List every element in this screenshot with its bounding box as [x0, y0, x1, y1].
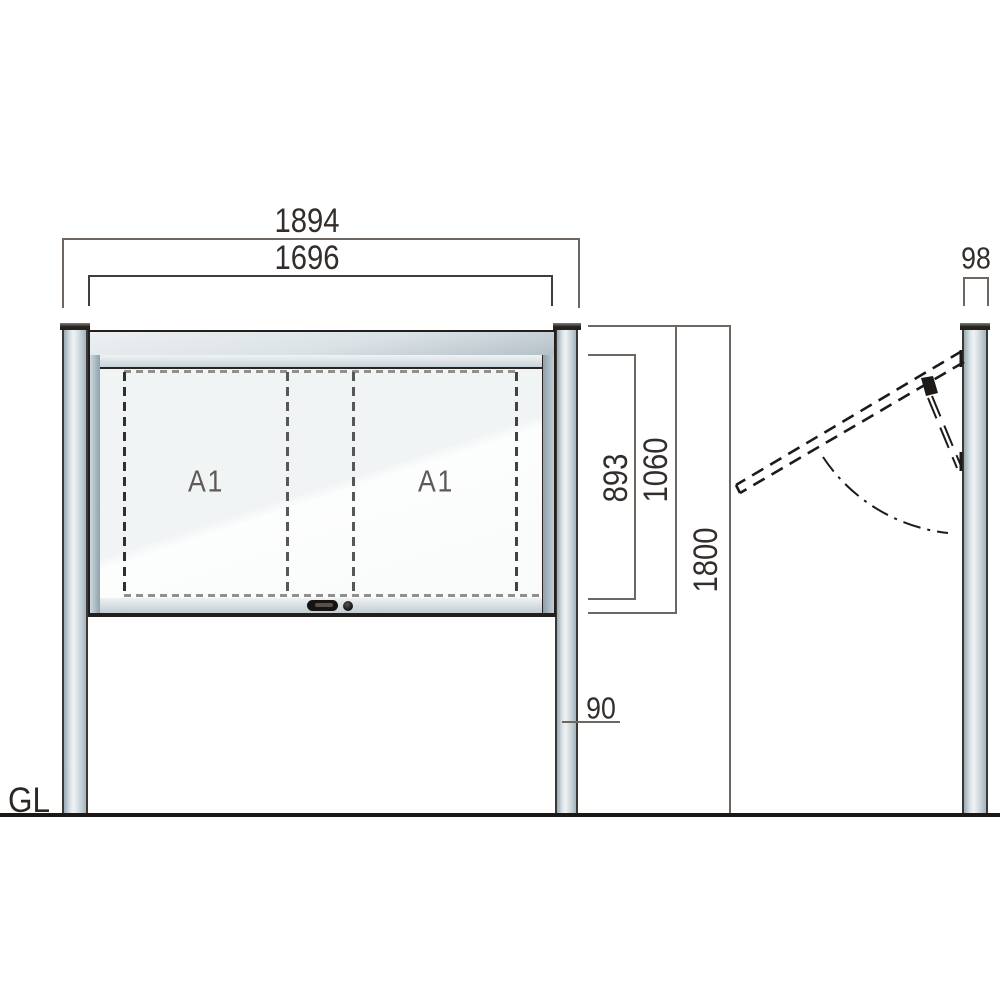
extension-line-board-top [588, 325, 731, 327]
ground-line-label: GL [8, 783, 50, 818]
dim-1060-line [675, 325, 677, 614]
poster-size-label-right: A1 [418, 466, 454, 497]
board-left-frame [88, 355, 100, 617]
poster-size-label-left: A1 [188, 466, 224, 497]
front-left-post-cap [60, 323, 90, 330]
ground-line [0, 813, 1000, 817]
door-swing-arc [823, 457, 948, 533]
poster-area-dashed-bottom [124, 594, 542, 597]
dim-98-tick-left [963, 277, 965, 306]
dim-1696-label: 1696 [274, 241, 339, 275]
dim-1894-tick-right [578, 238, 580, 308]
gas-stay-rod-dashed-b [932, 396, 961, 466]
poster-area-dashed-top [124, 370, 516, 373]
dim-90-label: 90 [586, 693, 616, 724]
technical-drawing-canvas: A1 A1 1894 1696 893 1060 1800 90 98 [0, 0, 1000, 1000]
front-right-post-cap [553, 323, 581, 330]
board-bottom-edge [88, 613, 556, 617]
poster-dashed-line-right [515, 372, 518, 595]
front-right-post [555, 329, 578, 815]
dim-1894-label: 1894 [274, 204, 339, 238]
poster-dashed-line-mid-2 [352, 372, 355, 595]
board-right-frame [542, 355, 556, 617]
dim-893-ext-bottom [588, 598, 636, 600]
side-view-post-cap [960, 323, 990, 330]
dim-98-tick-right [987, 277, 989, 306]
open-door-end-cap [736, 485, 740, 493]
glass-panel [100, 369, 542, 598]
dim-1894-tick-left [62, 238, 64, 308]
board-top-frame [88, 330, 556, 357]
dim-893-label: 893 [599, 454, 633, 503]
dim-1060-label: 1060 [639, 437, 673, 502]
open-door-dashed-upper-edge [736, 351, 962, 485]
poster-dashed-line-mid-1 [286, 372, 289, 595]
dim-1696-tick-left [88, 275, 90, 306]
dim-1696-tick-right [551, 275, 553, 306]
door-top-rail [100, 355, 542, 369]
poster-dashed-line-left [123, 372, 126, 595]
door-lock [343, 601, 353, 611]
dim-98-label: 98 [961, 243, 991, 274]
dim-98-line [963, 277, 989, 279]
gas-stay-rod-dashed-a [928, 398, 957, 468]
door-handle-slot [315, 603, 333, 607]
front-left-post [62, 329, 88, 815]
side-view-open-door-diagram [700, 330, 1000, 570]
dim-1060-ext-bottom [588, 612, 677, 614]
dim-893-ext-top [588, 354, 636, 356]
